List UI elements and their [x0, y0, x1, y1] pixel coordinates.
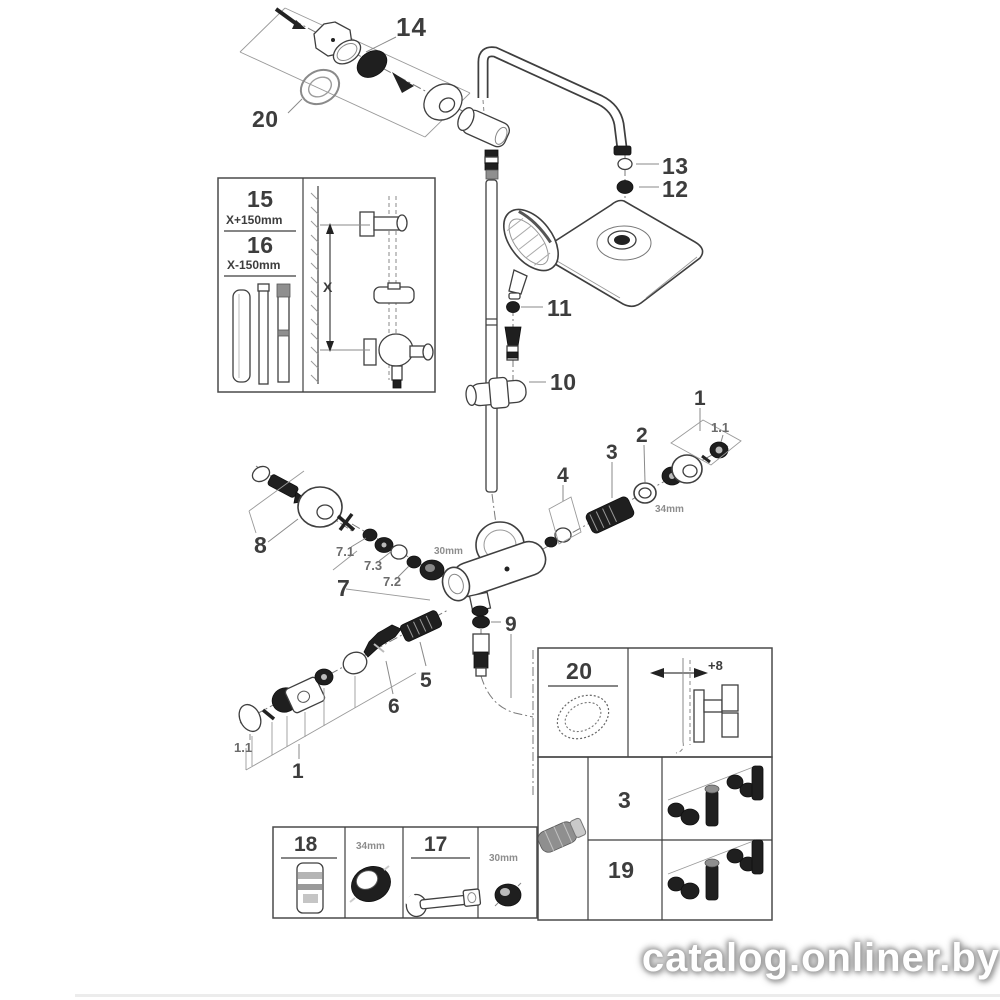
exploded-parts-diagram: 14 20 13 12: [0, 0, 1000, 1000]
callout-9: 9: [505, 613, 517, 636]
callout-12: 12: [662, 176, 689, 202]
seal-1-1-bottom: [235, 701, 265, 735]
inset-part15: 15: [247, 186, 274, 212]
seal-11: [507, 302, 520, 313]
inset-part15-dim: X+150mm: [226, 213, 282, 227]
inset-part19: 19: [608, 857, 635, 883]
inset-service-box: 3 19: [536, 757, 772, 920]
hose-nut-9: [473, 616, 490, 628]
callout-1-right: 1: [694, 387, 706, 410]
hand-shower-handle: [509, 270, 527, 294]
shower-rail: [486, 180, 497, 492]
inset-part20: 20: [566, 658, 593, 684]
callout-5: 5: [420, 669, 432, 692]
callout-1-1-bottom: 1.1: [234, 740, 252, 755]
inset-part18: 18: [294, 833, 318, 856]
callout-7: 7: [337, 575, 350, 601]
callout-7-1: 7.1: [336, 544, 354, 559]
head-shower-group: [543, 201, 702, 307]
callout-1-1-right: 1.1: [711, 420, 729, 435]
inset-part16-dim: X-150mm: [227, 258, 280, 272]
callout-14: 14: [396, 12, 427, 42]
callout-3: 3: [606, 441, 618, 464]
height-diagram: X: [311, 186, 433, 388]
inset-part17: 17: [424, 833, 447, 856]
inset-heights-box: 15 X+150mm 16 X-150mm: [218, 178, 435, 392]
dim-30mm: 30mm: [434, 546, 463, 557]
bottom-divider: [75, 994, 1000, 997]
bottom-connection-group: 6 5 1.1 1: [234, 609, 443, 783]
inset-part16: 16: [247, 232, 274, 258]
cartridge-18: [297, 863, 323, 913]
seal-13: [618, 159, 632, 170]
callout-6: 6: [388, 695, 400, 718]
inset-seal-box: 20 +8: [538, 648, 772, 757]
hand-shower-group: 11: [493, 199, 572, 360]
callout-1-bottom: 1: [292, 760, 304, 783]
nut-30mm-tool: [495, 883, 521, 906]
direction-arrow: [392, 72, 414, 93]
callout-7-3: 7.3: [364, 558, 382, 573]
callout-20: 20: [252, 106, 279, 132]
callout-11: 11: [547, 295, 572, 321]
seal-ring-20-group: 20: [252, 63, 345, 132]
callout-10: 10: [550, 369, 577, 395]
ring-nut-34mm: [346, 860, 397, 908]
group-frame-1: [246, 673, 416, 770]
head-shower: [543, 201, 702, 307]
cartridge-small-parts-group: 30mm 7.1 7.3 7.2 7: [333, 529, 463, 601]
wrench-icon: [403, 886, 481, 917]
right-connection-group: 4 3 2 34mm 1 1.1: [545, 387, 741, 547]
service-parts-set: [668, 766, 763, 826]
inset-x-label: X: [323, 279, 333, 295]
watermark: catalog.onliner.by: [642, 936, 1000, 981]
screw-icon: [276, 9, 298, 25]
seal-offset-diagram: +8: [650, 658, 738, 753]
callout-4: 4: [557, 464, 569, 487]
hose-nipple: [505, 327, 521, 346]
inset-tools-box: 18 34mm 17 30mm: [273, 827, 537, 918]
inset-offset-label: +8: [708, 658, 723, 673]
inset-part3: 3: [618, 787, 631, 813]
callout-2: 2: [636, 424, 648, 447]
s-union-3: [585, 495, 636, 534]
head-hub: [614, 235, 630, 245]
hose-fitting: [473, 634, 489, 654]
callout-8: 8: [254, 532, 267, 558]
seal-ring: [295, 63, 346, 111]
filter-part: [536, 816, 588, 855]
shower-arm-group: 13 12: [483, 52, 689, 202]
parts-diagram-page: 14 20 13 12: [0, 0, 1000, 1000]
inset-dim30: 30mm: [489, 853, 518, 864]
rail-tube-options: [233, 284, 290, 384]
callout-7-2: 7.2: [383, 574, 401, 589]
cone-6: [364, 625, 401, 657]
dim-34mm: 34mm: [655, 504, 684, 515]
inset-dim34: 34mm: [356, 841, 385, 852]
seal-12: [617, 181, 633, 194]
ribbed-part-5: [399, 609, 443, 642]
